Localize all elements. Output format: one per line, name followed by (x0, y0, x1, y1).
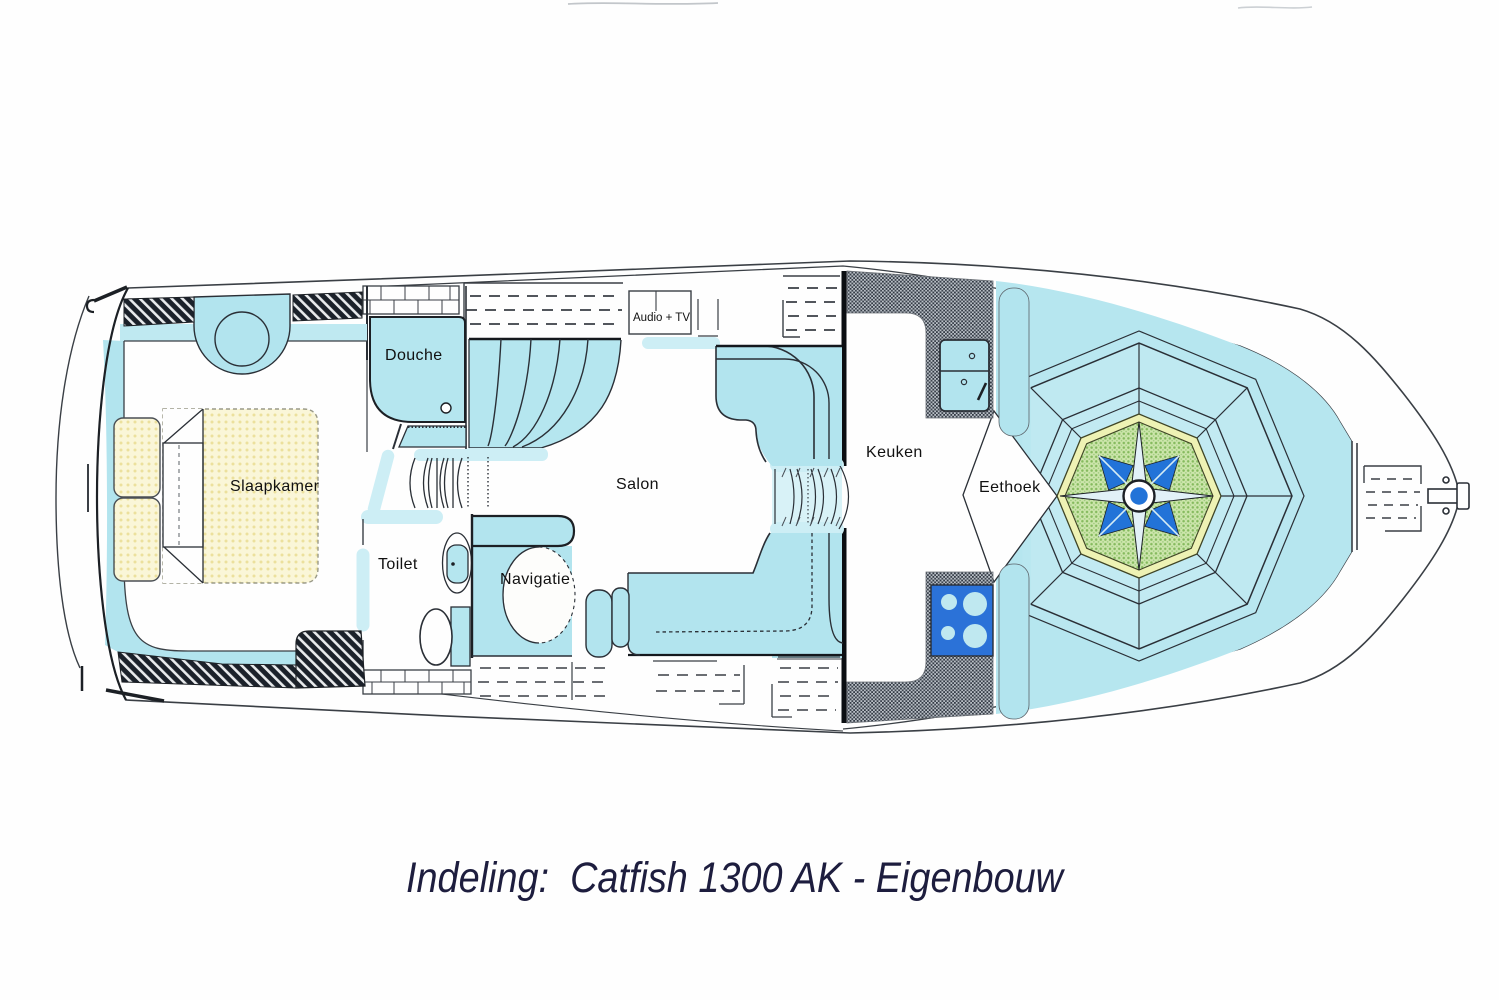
svg-text:Eethoek: Eethoek (979, 479, 1041, 496)
svg-text:Keuken: Keuken (866, 444, 923, 461)
svg-text:Slaapkamer: Slaapkamer (230, 478, 320, 495)
svg-text:Navigatie: Navigatie (500, 571, 570, 588)
svg-text:Audio + TV: Audio + TV (633, 312, 690, 324)
svg-text:Salon: Salon (616, 476, 659, 493)
svg-text:Toilet: Toilet (378, 556, 418, 573)
svg-text:Douche: Douche (385, 347, 443, 364)
svg-text:Indeling: Catfish 1300 AK - E: Indeling: Catfish 1300 AK - Eigenbouw (406, 854, 1066, 902)
